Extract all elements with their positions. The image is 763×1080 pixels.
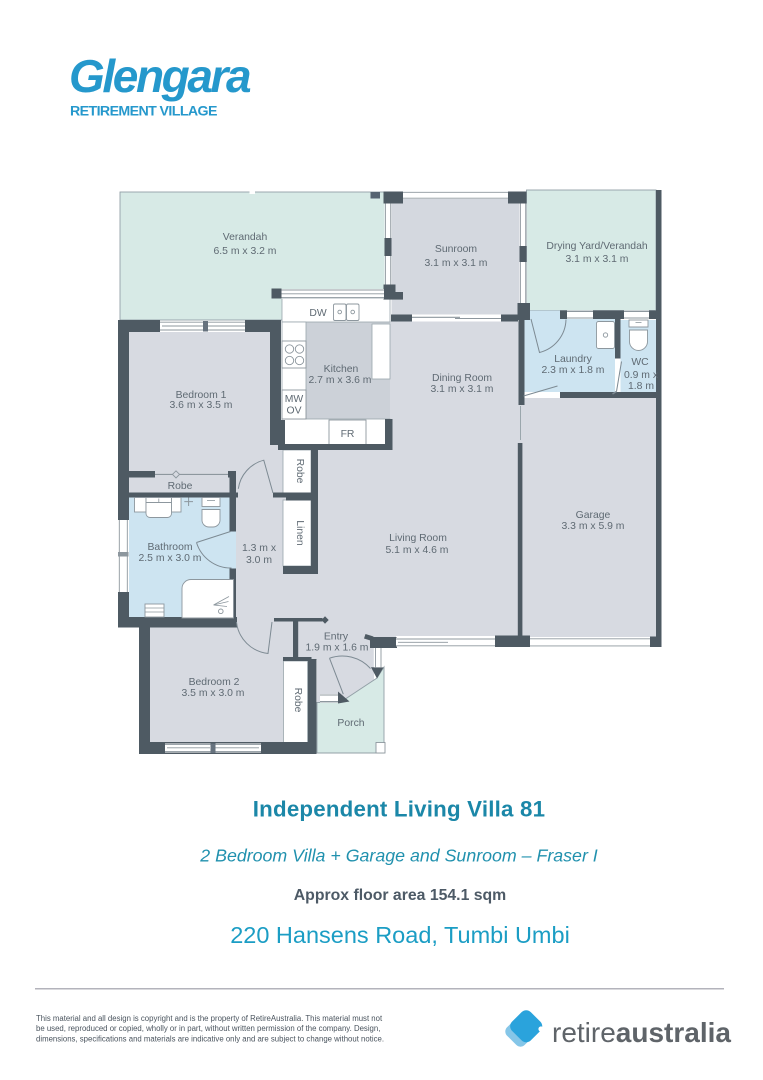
svg-text:Robe: Robe <box>168 481 193 492</box>
svg-text:220 Hansens Road, Tumbi Umbi: 220 Hansens Road, Tumbi Umbi <box>230 922 570 948</box>
svg-text:3.1 m x 3.1 m: 3.1 m x 3.1 m <box>425 258 488 269</box>
svg-text:Dining Room: Dining Room <box>432 373 492 384</box>
svg-text:FR: FR <box>341 429 355 440</box>
svg-text:Bathroom: Bathroom <box>147 542 192 553</box>
svg-text:Entry: Entry <box>324 632 349 643</box>
svg-text:2.5 m x 3.0 m: 2.5 m x 3.0 m <box>139 553 202 564</box>
svg-text:3.1 m x 3.1 m: 3.1 m x 3.1 m <box>566 254 629 265</box>
svg-text:3.6 m x 3.5 m: 3.6 m x 3.5 m <box>170 400 233 411</box>
svg-text:Living Room: Living Room <box>389 533 447 544</box>
svg-text:Sunroom: Sunroom <box>435 244 477 255</box>
svg-text:MW: MW <box>285 394 304 405</box>
svg-text:1.3 m x: 1.3 m x <box>242 543 277 554</box>
svg-text:1.9 m x 1.6 m: 1.9 m x 1.6 m <box>306 643 369 654</box>
svg-text:3.3 m x 5.9 m: 3.3 m x 5.9 m <box>562 521 625 532</box>
svg-text:Robe: Robe <box>294 459 305 484</box>
svg-text:DW: DW <box>309 308 327 319</box>
svg-text:Glengara: Glengara <box>69 50 251 102</box>
svg-text:Verandah: Verandah <box>223 232 268 243</box>
svg-text:Porch: Porch <box>337 718 364 729</box>
svg-text:retireaustralia: retireaustralia <box>552 1017 731 1048</box>
svg-text:be used, reproduced or copied,: be used, reproduced or copied, wholly or… <box>36 1024 380 1033</box>
svg-text:This material and all design i: This material and all design is copyrigh… <box>36 1014 383 1023</box>
svg-text:Approx floor area 154.1 sqm: Approx floor area 154.1 sqm <box>294 887 506 904</box>
svg-text:3.1 m x 3.1 m: 3.1 m x 3.1 m <box>431 384 494 395</box>
svg-text:0.9 m x: 0.9 m x <box>624 370 659 381</box>
svg-text:1.8 m: 1.8 m <box>628 381 654 392</box>
svg-text:OV: OV <box>286 406 301 417</box>
svg-text:Robe: Robe <box>292 688 303 713</box>
svg-text:RETIREMENT VILLAGE: RETIREMENT VILLAGE <box>70 104 217 120</box>
svg-text:Laundry: Laundry <box>554 354 592 365</box>
svg-text:WC: WC <box>631 357 649 368</box>
svg-text:3.0 m: 3.0 m <box>246 555 272 566</box>
svg-text:3.5 m x 3.0 m: 3.5 m x 3.0 m <box>182 688 245 699</box>
svg-text:5.1 m x 4.6 m: 5.1 m x 4.6 m <box>386 545 449 556</box>
svg-text:dimensions, specifications and: dimensions, specifications and materials… <box>36 1035 384 1044</box>
svg-text:Kitchen: Kitchen <box>324 364 359 375</box>
svg-text:Independent Living Villa 81: Independent Living Villa 81 <box>253 797 545 822</box>
svg-text:2 Bedroom Villa + Garage and S: 2 Bedroom Villa + Garage and Sunroom – F… <box>199 846 598 866</box>
svg-text:Garage: Garage <box>576 510 611 521</box>
svg-text:2.3 m x 1.8 m: 2.3 m x 1.8 m <box>542 365 605 376</box>
svg-text:2.7 m x 3.6 m: 2.7 m x 3.6 m <box>309 375 372 386</box>
svg-text:Bedroom 2: Bedroom 2 <box>189 677 240 688</box>
svg-text:Drying Yard/Verandah: Drying Yard/Verandah <box>546 241 647 252</box>
svg-text:Linen: Linen <box>294 520 305 546</box>
svg-text:6.5 m x 3.2 m: 6.5 m x 3.2 m <box>214 246 277 257</box>
